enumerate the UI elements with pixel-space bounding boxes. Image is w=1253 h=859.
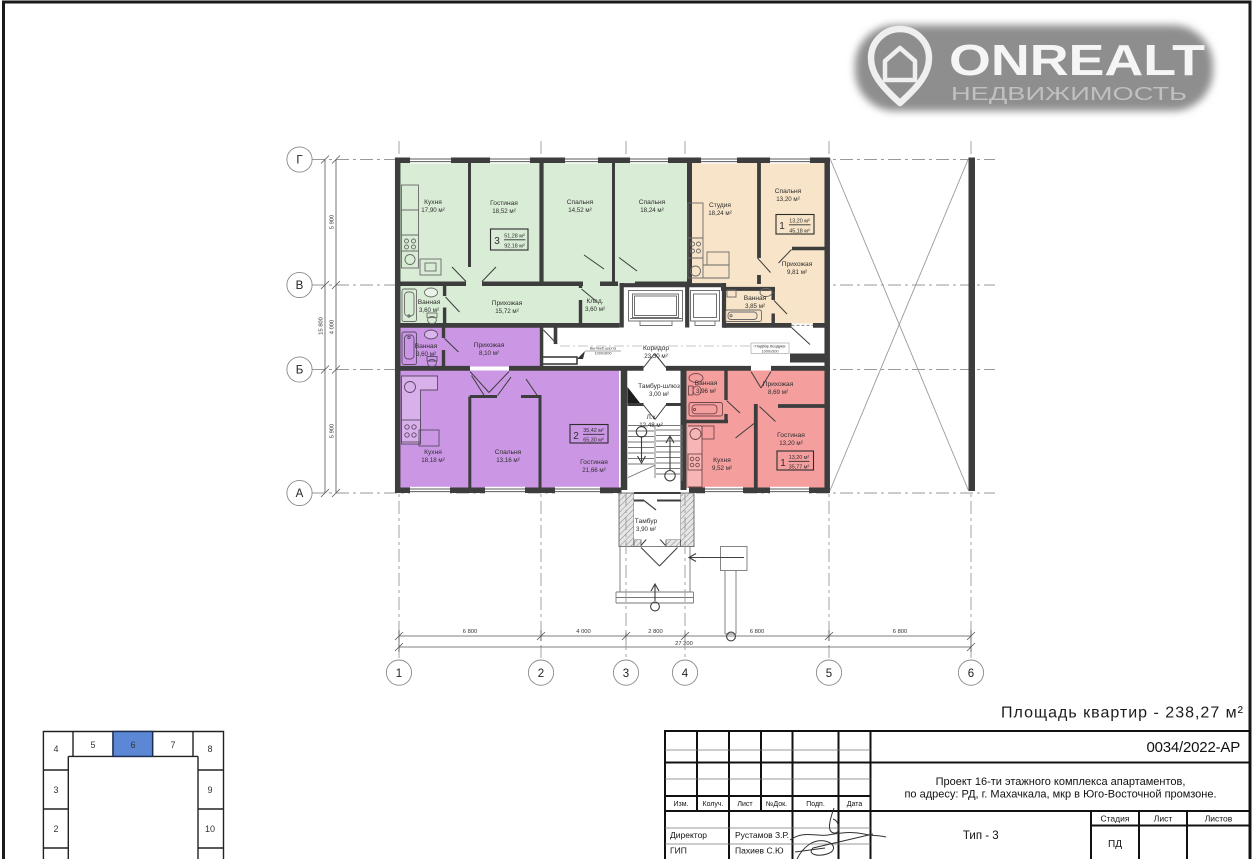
svg-text:9,81 м²: 9,81 м² (787, 269, 807, 276)
svg-text:6: 6 (130, 740, 135, 750)
svg-text:14,52 м²: 14,52 м² (568, 207, 592, 214)
svg-text:3: 3 (623, 668, 629, 680)
svg-text:Пахиев С.Ю: Пахиев С.Ю (735, 846, 784, 856)
svg-text:17,90 м²: 17,90 м² (421, 207, 445, 214)
svg-text:Гостиная: Гостиная (490, 200, 518, 207)
svg-text:Кухня: Кухня (424, 199, 442, 206)
svg-text:8,10 м²: 8,10 м² (479, 350, 499, 357)
svg-text:3,90 м²: 3,90 м² (636, 526, 656, 533)
svg-text:Кухня: Кухня (713, 457, 731, 464)
svg-text:Листов: Листов (1205, 814, 1233, 824)
svg-text:Тамбур: Тамбур (635, 517, 658, 525)
svg-text:6 800: 6 800 (893, 629, 908, 635)
svg-text:2: 2 (53, 824, 58, 834)
svg-text:Прихожая: Прихожая (782, 261, 813, 268)
svg-text:4 000: 4 000 (330, 320, 336, 335)
svg-text:3,96 м²: 3,96 м² (696, 388, 716, 395)
svg-text:2: 2 (573, 431, 579, 442)
svg-text:Площадь квартир - 238,27 м²: Площадь квартир - 238,27 м² (1001, 705, 1244, 722)
svg-text:5: 5 (826, 668, 832, 680)
svg-text:Спальня: Спальня (567, 199, 594, 206)
svg-text:13,20 м²: 13,20 м² (789, 219, 810, 225)
svg-text:Студия: Студия (709, 202, 731, 209)
svg-text:13,16 м²: 13,16 м² (496, 457, 520, 464)
svg-text:Гостиная: Гостиная (777, 432, 805, 439)
svg-text:Л.к: Л.к (646, 414, 655, 421)
svg-text:18,18 м²: 18,18 м² (421, 457, 445, 464)
svg-text:Клад.: Клад. (586, 298, 603, 305)
svg-text:А: А (296, 488, 304, 500)
svg-text:6 800: 6 800 (750, 629, 765, 635)
svg-text:Стадия: Стадия (1101, 814, 1130, 824)
svg-text:Ванная: Ванная (695, 380, 718, 387)
svg-text:Прихожая: Прихожая (492, 300, 523, 307)
svg-text:1000х500: 1000х500 (761, 349, 779, 354)
svg-text:Лист: Лист (737, 801, 753, 808)
svg-text:ONREALT: ONREALT (949, 36, 1205, 85)
svg-text:35,77 м²: 35,77 м² (789, 465, 810, 471)
svg-text:15,72 м²: 15,72 м² (495, 308, 519, 315)
svg-text:6 800: 6 800 (463, 629, 478, 635)
svg-text:6: 6 (968, 668, 974, 680)
svg-text:1: 1 (780, 458, 786, 469)
svg-text:Тамбур-шлюз: Тамбур-шлюз (638, 382, 680, 390)
svg-text:по адресу: РД, г. Махачкала, м: по адресу: РД, г. Махачкала, мкр в Юго-В… (904, 789, 1216, 801)
svg-text:13,20 м²: 13,20 м² (789, 455, 810, 461)
svg-text:3,00 м²: 3,00 м² (649, 391, 669, 398)
svg-text:Прихожая: Прихожая (763, 381, 794, 388)
svg-text:18,52 м²: 18,52 м² (492, 208, 516, 215)
svg-text:Колуч.: Колуч. (703, 801, 724, 808)
svg-text:3,85 м²: 3,85 м² (745, 303, 765, 310)
svg-text:92,18 м²: 92,18 м² (504, 244, 525, 250)
svg-text:3: 3 (494, 236, 500, 247)
svg-text:8,69 м²: 8,69 м² (768, 389, 788, 396)
svg-text:65,30 м²: 65,30 м² (583, 438, 604, 444)
svg-text:Б: Б (296, 365, 304, 377)
svg-text:2: 2 (538, 668, 544, 680)
svg-text:Ванная: Ванная (744, 295, 767, 302)
svg-text:8: 8 (207, 744, 212, 754)
svg-text:9,52 м²: 9,52 м² (712, 465, 732, 472)
svg-text:13,20 м²: 13,20 м² (779, 440, 803, 447)
svg-text:3,60 м²: 3,60 м² (419, 307, 439, 314)
svg-text:5 900: 5 900 (330, 215, 336, 230)
svg-text:Подп.: Подп. (806, 801, 825, 808)
svg-text:Кухня: Кухня (424, 449, 442, 456)
svg-text:4: 4 (53, 744, 58, 754)
svg-text:НЕДВИЖИМОСТЬ: НЕДВИЖИМОСТЬ (951, 84, 1187, 104)
svg-text:13,20 м²: 13,20 м² (776, 196, 800, 203)
svg-text:Спальня: Спальня (775, 188, 802, 195)
svg-text:Гостиная: Гостиная (580, 459, 608, 466)
svg-text:23,30 м²: 23,30 м² (644, 353, 668, 360)
svg-text:12,48 м²: 12,48 м² (639, 422, 663, 429)
svg-text:ГИП: ГИП (670, 846, 687, 856)
svg-text:Лист: Лист (1154, 814, 1173, 824)
svg-text:Рустамов З.Р.: Рустамов З.Р. (735, 830, 789, 840)
svg-text:15 800: 15 800 (319, 317, 325, 335)
svg-text:10: 10 (205, 824, 215, 834)
svg-text:18,24 м²: 18,24 м² (640, 207, 664, 214)
svg-text:Г: Г (296, 155, 303, 167)
svg-text:35,42 м²: 35,42 м² (583, 428, 604, 434)
svg-text:1: 1 (779, 221, 785, 232)
svg-text:3,60 м²: 3,60 м² (416, 351, 436, 358)
svg-text:Тип - 3: Тип - 3 (963, 830, 999, 842)
svg-text:21,66 м²: 21,66 м² (582, 467, 606, 474)
svg-text:45,18 м²: 45,18 м² (789, 229, 810, 235)
svg-text:Коридор: Коридор (643, 345, 669, 352)
svg-text:Директор: Директор (670, 830, 707, 840)
svg-text:Изм.: Изм. (674, 801, 689, 808)
svg-text:5: 5 (90, 740, 95, 750)
svg-text:1: 1 (396, 668, 402, 680)
svg-text:Ванная: Ванная (418, 299, 441, 306)
svg-text:4 000: 4 000 (576, 629, 591, 635)
svg-text:Спальня: Спальня (639, 199, 666, 206)
svg-text:5 900: 5 900 (330, 424, 336, 439)
svg-text:9: 9 (207, 785, 212, 795)
svg-text:2 800: 2 800 (648, 629, 663, 635)
svg-text:18,24 м²: 18,24 м² (708, 210, 732, 217)
svg-text:3,60 м²: 3,60 м² (585, 306, 605, 313)
svg-text:27 200: 27 200 (675, 641, 693, 647)
svg-text:4: 4 (682, 668, 689, 680)
svg-text:Ванная: Ванная (415, 343, 438, 350)
svg-text:Дата: Дата (847, 801, 863, 808)
svg-text:В: В (296, 280, 304, 292)
svg-text:Прихожая: Прихожая (474, 342, 505, 349)
svg-text:7: 7 (170, 740, 175, 750)
svg-text:Проект 16-ти этажного комплекс: Проект 16-ти этажного комплекса апартаме… (936, 776, 1186, 788)
svg-text:№Док.: №Док. (766, 801, 787, 808)
svg-text:ПД: ПД (1108, 839, 1122, 850)
svg-text:Спальня: Спальня (495, 449, 522, 456)
svg-text:51,28 м²: 51,28 м² (504, 234, 525, 240)
svg-text:0034/2022-АР: 0034/2022-АР (1146, 739, 1240, 756)
svg-text:3: 3 (53, 785, 58, 795)
